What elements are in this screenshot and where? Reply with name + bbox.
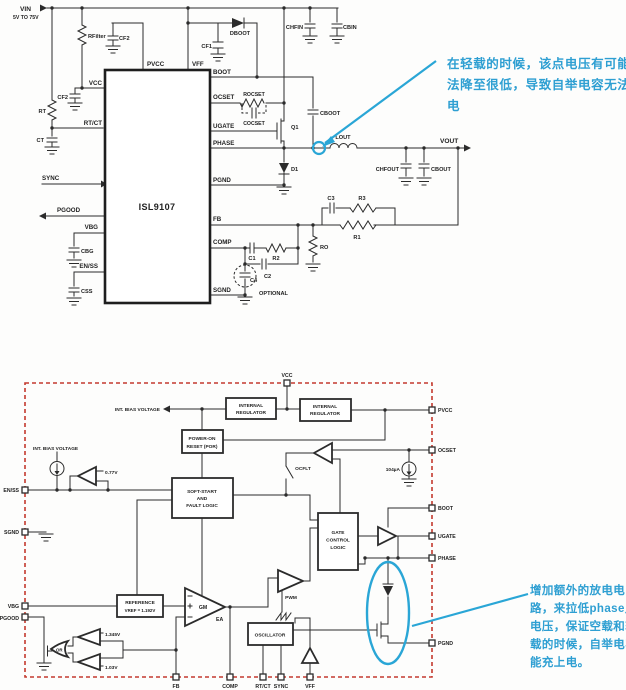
block-diagram: INTERNAL REGULATOR INTERNAL REGULATOR PO… xyxy=(0,373,626,690)
label-cf1: CF1 xyxy=(201,44,212,50)
reg2-l2: REGULATOR xyxy=(310,411,340,417)
label-q1: Q1 xyxy=(291,125,298,131)
bd-pin-sync: SYNC xyxy=(274,684,289,690)
label-pvcc: PVCC xyxy=(147,61,165,68)
label-c4: C4 xyxy=(250,278,258,284)
bd-pin-comp: COMP xyxy=(222,684,238,690)
bd-pin-pvcc: PVCC xyxy=(438,408,453,414)
vout-arrow xyxy=(464,145,471,152)
schematic-page: ISL9107 VIN 5V TO 75V RFilter CF2 CF2 RT… xyxy=(0,0,626,690)
label-rfilter: RFilter xyxy=(88,34,107,40)
bd-pin-vcc: VCC xyxy=(282,373,293,379)
lout-inductor xyxy=(330,144,357,149)
enss-source-arrowhead xyxy=(55,471,60,475)
label-vin-range: 5V TO 75V xyxy=(13,15,39,21)
label-ocflt: OCFLT xyxy=(295,466,311,472)
pgood-fet xyxy=(44,644,48,658)
por-l1: POWER-ON xyxy=(189,436,216,442)
label-chfout: CHFOUT xyxy=(376,167,400,173)
label-1p345v: 1.345V xyxy=(105,632,121,638)
cocset-branch xyxy=(242,103,266,113)
label-phase: PHASE xyxy=(213,140,234,147)
note2-line5: 能充上电。 xyxy=(530,655,590,669)
label-boot: BOOT xyxy=(213,69,231,76)
por-l2: RESET (POR) xyxy=(187,444,218,450)
int-bias-top-label: INT. BIAS VOLTAGE xyxy=(115,407,161,413)
pwm-comparator xyxy=(278,570,303,592)
label-0p77v: 0.77V xyxy=(105,470,118,476)
bd-pin-enss: EN/SS xyxy=(3,488,19,494)
label-cbin: CBIN xyxy=(343,25,357,31)
discharge-fet xyxy=(377,622,381,638)
ocset-source-arrowhead xyxy=(407,472,412,476)
ramp-glyph xyxy=(276,613,291,620)
pgood-comp-low xyxy=(78,654,100,670)
label-cocset: COCSET xyxy=(243,121,265,127)
bd-pin-ocset: OCSET xyxy=(438,448,457,454)
dboot-diode xyxy=(232,18,244,28)
label-optional: OPTIONAL xyxy=(259,291,288,297)
pgood-comp-high xyxy=(78,629,100,645)
note2-line2: 路，来拉低phase点 xyxy=(530,601,626,615)
pgood-arrow xyxy=(39,213,46,220)
cocset-plates xyxy=(252,108,256,118)
note1-line3: 电 xyxy=(447,98,460,113)
discharge-diode xyxy=(383,586,393,596)
bd-pin-sgnd: SGND xyxy=(4,530,19,536)
label-pgnd: PGND xyxy=(213,177,231,184)
ref-l2: VREF = 1.192V xyxy=(125,608,156,613)
bd-pin-vff: VFF xyxy=(305,684,315,690)
label-r2: R2 xyxy=(272,256,279,262)
label-rocset: ROCSET xyxy=(243,92,265,98)
note2-line4: 载的时候，自举电容 xyxy=(530,637,626,651)
ss-l2: AND xyxy=(197,496,208,502)
label-cboot: CBOOT xyxy=(320,111,341,117)
vin-arrow xyxy=(40,5,47,12)
label-cbout: CBOUT xyxy=(431,167,451,173)
label-cf2-top: CF2 xyxy=(119,36,130,42)
d1-bar xyxy=(279,173,289,175)
label-dboot: DBOOT xyxy=(230,31,251,37)
label-enss: EN/SS xyxy=(79,263,98,270)
label-rtct: RT/CT xyxy=(84,120,102,127)
label-css: CSS xyxy=(81,289,93,295)
label-sgnd: SGND xyxy=(213,287,231,294)
label-c3: C3 xyxy=(327,196,334,202)
label-vff: VFF xyxy=(192,61,204,68)
ic-label: ISL9107 xyxy=(139,202,176,212)
bd-pin-boot: BOOT xyxy=(438,506,454,512)
int-bias-arrow xyxy=(163,406,170,413)
label-r3: R3 xyxy=(358,196,365,202)
gcl-l2: CONTROL xyxy=(326,538,350,544)
ocflt-switch xyxy=(286,466,293,478)
enss-comparator xyxy=(78,467,96,485)
label-vbg: VBG xyxy=(85,224,99,231)
q1-mosfet xyxy=(277,119,281,143)
bd-pin-fb: FB xyxy=(173,684,180,690)
bd-pin-phase: PHASE xyxy=(438,556,456,562)
label-fb: FB xyxy=(213,216,222,223)
vff-buffer xyxy=(302,648,318,663)
label-104ua: 104µA xyxy=(386,467,401,473)
grounds-top xyxy=(45,36,431,305)
note1-line1: 在轻载的时候，该点电压有可能无 xyxy=(447,56,626,71)
label-ugate: UGATE xyxy=(213,123,234,130)
reg2-l1: INTERNAL xyxy=(313,404,337,410)
bd-pin-vbg: VBG xyxy=(8,604,19,610)
block-internal-regulator-2 xyxy=(300,399,351,421)
gcl-l1: GATE xyxy=(332,530,346,536)
label-cbg: CBG xyxy=(81,249,93,255)
label-sync: SYNC xyxy=(42,175,60,182)
label-1p03v: 1.03V xyxy=(105,665,118,671)
int-bias-left-label: INT. BIAS VOLTAGE xyxy=(33,446,79,452)
label-rt: RT xyxy=(39,109,47,115)
label-gm: GM xyxy=(199,605,207,611)
label-pgood: PGOOD xyxy=(57,207,81,214)
gate-driver xyxy=(378,527,396,545)
label-pwm: PWM xyxy=(285,595,297,601)
d1-diode xyxy=(279,163,289,173)
label-chfin: CHFIN xyxy=(286,25,303,31)
label-ct: CT xyxy=(37,138,45,144)
label-comp: COMP xyxy=(213,239,232,246)
label-vin: VIN xyxy=(20,6,31,13)
top-schematic: ISL9107 VIN 5V TO 75V RFilter CF2 CF2 RT… xyxy=(13,5,626,306)
label-or: OR xyxy=(56,648,63,653)
callout2-line xyxy=(412,594,528,626)
label-cf2-left: CF2 xyxy=(57,95,68,101)
reg1-l2: REGULATOR xyxy=(236,410,266,416)
label-r1: R1 xyxy=(353,235,360,241)
circuit-canvas: ISL9107 VIN 5V TO 75V RFilter CF2 CF2 RT… xyxy=(0,0,626,690)
note1-line2: 法降至很低，导致自举电容无法充 xyxy=(447,77,626,92)
label-c1: C1 xyxy=(248,256,255,262)
bd-pin-ugate: UGATE xyxy=(438,534,456,540)
bd-pin-pgood: PGOOD xyxy=(0,616,19,622)
label-ro: RO xyxy=(320,245,329,251)
ref-l1: REFERENCE xyxy=(125,600,155,606)
label-ocset: OCSET xyxy=(213,94,235,101)
bd-pin-pgnd: PGND xyxy=(438,641,453,647)
ss-l3: FAULT LOGIC xyxy=(186,503,218,509)
callout1-line xyxy=(325,61,436,143)
label-lout: LOUT xyxy=(335,135,351,141)
label-vcc: VCC xyxy=(89,80,103,87)
reg1-l1: INTERNAL xyxy=(239,403,263,409)
note2-line1: 增加额外的放电电 xyxy=(530,583,625,597)
gcl-l3: LOGIC xyxy=(330,545,346,551)
osc-label: OSCILLATOR xyxy=(255,633,286,639)
label-d1: D1 xyxy=(291,167,298,173)
label-c2: C2 xyxy=(264,274,271,280)
bd-pin-rtct: RT/CT xyxy=(255,684,271,690)
label-ea: EA xyxy=(216,617,223,623)
note2-line3: 电压，保证空载和轻 xyxy=(530,619,626,633)
label-vout: VOUT xyxy=(440,138,458,145)
ic-body xyxy=(105,70,210,303)
ocflt-comparator xyxy=(314,443,332,463)
ic-boundary-dashed xyxy=(25,383,432,677)
ss-l1: SOFT-START xyxy=(187,489,217,495)
block-reference xyxy=(117,595,163,617)
